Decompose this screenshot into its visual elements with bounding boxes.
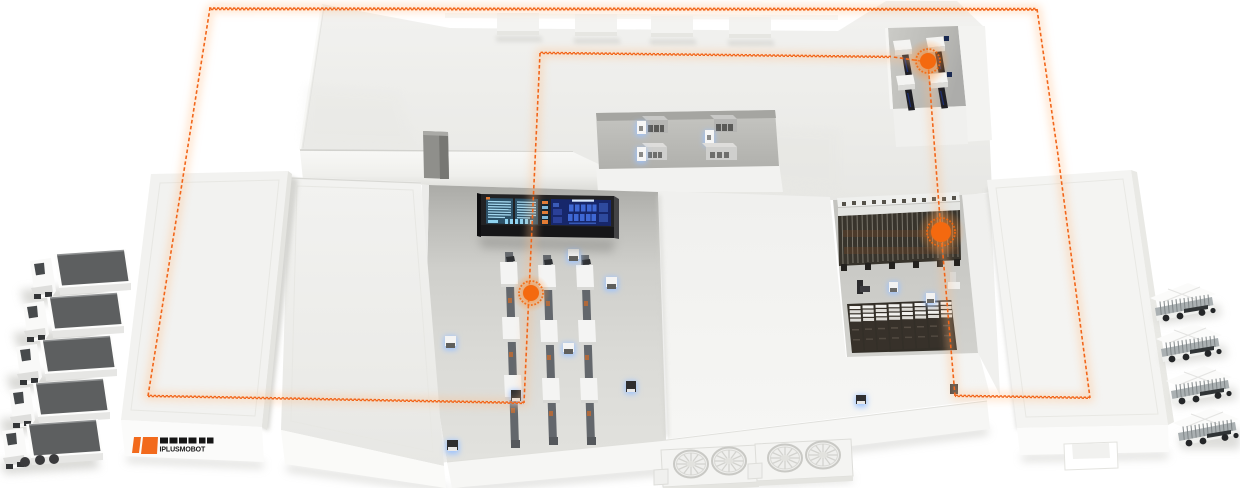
svg-text:IPLUSMOBOT: IPLUSMOBOT <box>160 447 206 454</box>
